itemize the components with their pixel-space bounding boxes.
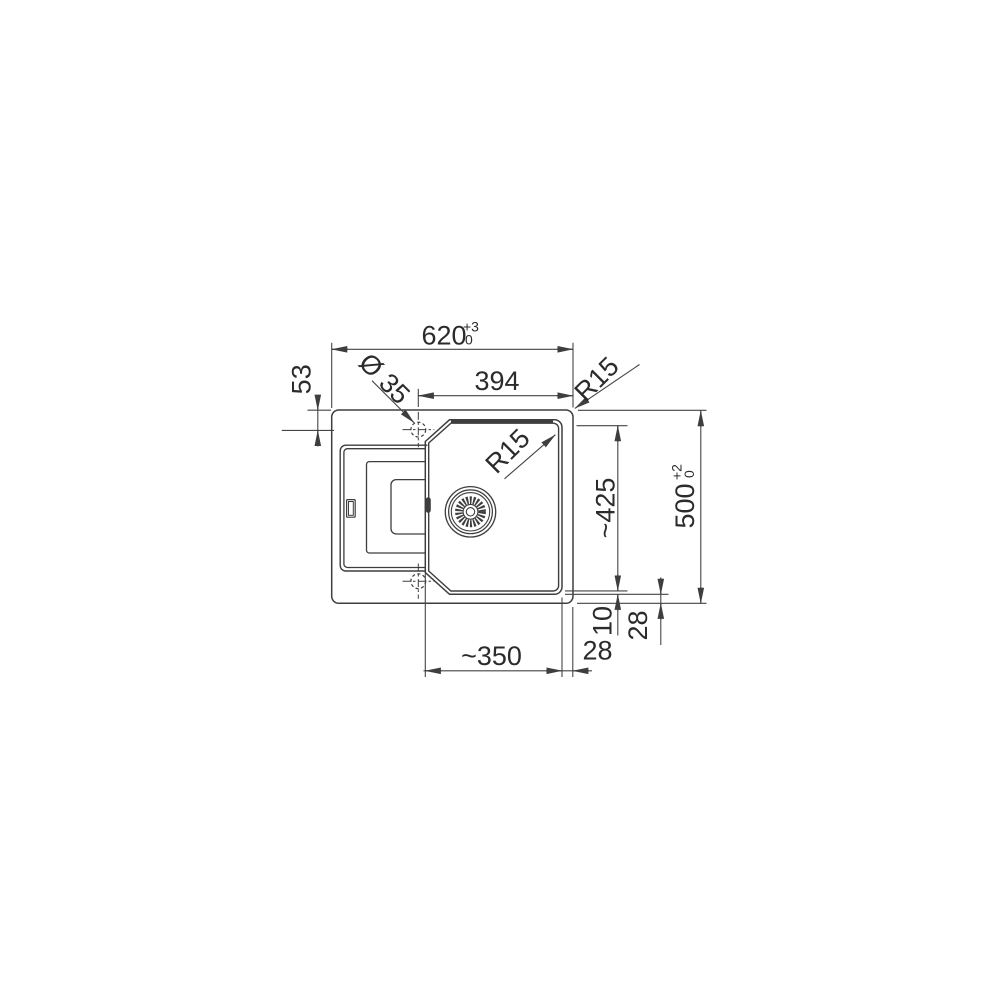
drainboard-step-outline	[367, 462, 427, 553]
dim-rim-width: 10	[588, 606, 618, 636]
dim-overall-width-tol-minus: 0	[465, 331, 473, 347]
dim-bowl-length: ~425	[591, 478, 621, 539]
dim-overall-depth: 500 +2 0	[669, 464, 701, 529]
drainboard-slot-outer	[347, 500, 356, 518]
dimension-labels: 620 +3 0 394 53 Ø 35 R15 R15 ~425 500 +2…	[287, 319, 701, 671]
divider-notch	[426, 497, 431, 513]
dim-tap-hole-offset: 53	[287, 364, 317, 394]
dim-right-edge-gap: 28	[623, 610, 653, 640]
dim-bottom-edge-gap: 28	[582, 636, 612, 666]
drain-strainer	[445, 487, 495, 537]
dim-bowl-width: ~350	[461, 641, 522, 671]
drainboard-slot-inner	[349, 502, 354, 516]
drainboard-inner-recess	[391, 480, 426, 534]
svg-text:500: 500	[670, 483, 700, 528]
dim-hole-to-edge: 394	[474, 366, 519, 396]
dim-tap-hole-diameter: Ø 35	[353, 347, 416, 410]
sink-technical-drawing: 620 +3 0 394 53 Ø 35 R15 R15 ~425 500 +2…	[0, 0, 1000, 1000]
tap-hole-bottom	[403, 564, 435, 599]
dim-overall-width: 620	[421, 320, 466, 350]
dim-cutout-corner-radius: R15	[569, 351, 625, 407]
dim-bowl-corner-radius: R15	[480, 423, 536, 479]
dim-overall-depth-tol-minus: 0	[681, 470, 697, 478]
strainer-teeth-ring	[459, 500, 482, 523]
drainboard-inner-rim	[344, 449, 426, 568]
sink-technical-drawing-page: 620 +3 0 394 53 Ø 35 R15 R15 ~425 500 +2…	[0, 0, 1000, 1000]
